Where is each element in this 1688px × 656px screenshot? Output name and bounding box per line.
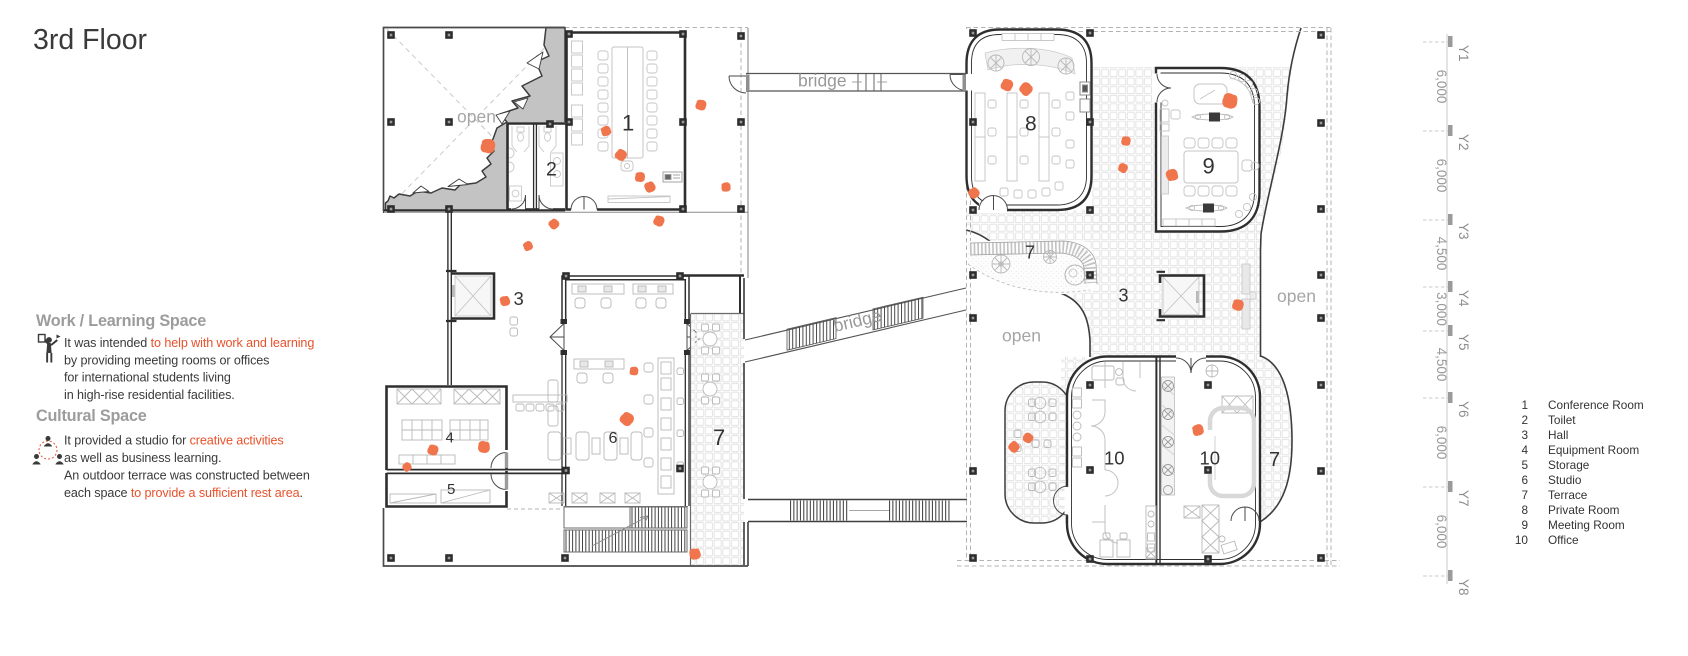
svg-text:6: 6 xyxy=(609,430,618,447)
svg-text:Terrace: Terrace xyxy=(1548,488,1588,502)
svg-text:6,000: 6,000 xyxy=(1434,159,1449,193)
svg-text:4,500: 4,500 xyxy=(1434,237,1449,271)
svg-text:Y4: Y4 xyxy=(1456,290,1471,307)
svg-text:10: 10 xyxy=(1104,448,1125,469)
svg-text:Equipment Room: Equipment Room xyxy=(1548,443,1639,457)
svg-text:Studio: Studio xyxy=(1548,473,1582,487)
svg-text:4: 4 xyxy=(1521,443,1528,457)
svg-text:Y1: Y1 xyxy=(1456,45,1471,62)
svg-text:7: 7 xyxy=(1025,243,1035,263)
svg-text:7: 7 xyxy=(1521,488,1528,502)
svg-text:for international students liv: for international students living xyxy=(64,371,231,385)
svg-text:Conference Room: Conference Room xyxy=(1548,398,1644,412)
svg-text:as well as business learning.: as well as business learning. xyxy=(64,451,221,465)
svg-text:open: open xyxy=(1277,286,1316,306)
svg-text:each space to provide a suffic: each space to provide a sufficient rest … xyxy=(64,486,303,500)
svg-text:Cultural Space: Cultural Space xyxy=(36,407,147,425)
svg-text:4: 4 xyxy=(446,430,454,447)
svg-text:It provided a studio for creat: It provided a studio for creative activi… xyxy=(64,434,284,448)
svg-text:5: 5 xyxy=(1521,458,1528,472)
svg-text:9: 9 xyxy=(1521,518,1528,532)
svg-text:5: 5 xyxy=(447,481,455,498)
svg-text:2: 2 xyxy=(1521,413,1528,427)
svg-text:6,000: 6,000 xyxy=(1434,426,1449,460)
svg-text:3rd Floor: 3rd Floor xyxy=(33,24,148,56)
svg-text:Y8: Y8 xyxy=(1456,579,1471,596)
svg-text:3: 3 xyxy=(1119,286,1129,306)
svg-text:6: 6 xyxy=(1521,473,1528,487)
svg-text:Private Room: Private Room xyxy=(1548,503,1620,517)
svg-text:Work / Learning Space: Work / Learning Space xyxy=(36,312,206,330)
svg-text:Y5: Y5 xyxy=(1456,334,1471,351)
svg-text:9: 9 xyxy=(1203,154,1215,179)
svg-text:7: 7 xyxy=(1269,449,1280,471)
svg-text:open: open xyxy=(1002,326,1041,346)
svg-text:2: 2 xyxy=(546,158,557,180)
svg-text:by providing meeting rooms or: by providing meeting rooms or offices xyxy=(64,353,269,367)
svg-text:Hall: Hall xyxy=(1548,428,1568,442)
svg-text:Y7: Y7 xyxy=(1456,490,1471,507)
svg-text:open: open xyxy=(457,107,496,127)
svg-text:10: 10 xyxy=(1515,533,1529,547)
svg-text:6,000: 6,000 xyxy=(1434,70,1449,104)
svg-text:4,500: 4,500 xyxy=(1434,348,1449,382)
svg-text:7: 7 xyxy=(713,425,725,450)
svg-text:10: 10 xyxy=(1200,448,1221,469)
svg-text:3: 3 xyxy=(1521,428,1528,442)
svg-text:3: 3 xyxy=(514,288,524,309)
svg-text:8: 8 xyxy=(1521,503,1528,517)
svg-text:Toilet: Toilet xyxy=(1548,413,1576,427)
svg-text:It was intended to help with w: It was intended to help with work and le… xyxy=(64,336,314,350)
svg-text:3,000: 3,000 xyxy=(1434,292,1449,326)
svg-text:An outdoor terrace was constru: An outdoor terrace was constructed betwe… xyxy=(64,468,310,482)
svg-text:1: 1 xyxy=(622,111,634,136)
svg-text:in high-rise residential facil: in high-rise residential facilities. xyxy=(64,388,235,402)
svg-text:8: 8 xyxy=(1025,113,1037,136)
svg-text:Y2: Y2 xyxy=(1456,134,1471,151)
svg-text:Storage: Storage xyxy=(1548,458,1590,472)
svg-text:6,000: 6,000 xyxy=(1434,515,1449,549)
svg-text:Meeting Room: Meeting Room xyxy=(1548,518,1625,532)
svg-text:Office: Office xyxy=(1548,533,1579,547)
svg-text:Y6: Y6 xyxy=(1456,401,1471,418)
svg-text:bridge: bridge xyxy=(798,71,847,91)
svg-text:1: 1 xyxy=(1521,398,1528,412)
svg-text:Y3: Y3 xyxy=(1456,223,1471,240)
